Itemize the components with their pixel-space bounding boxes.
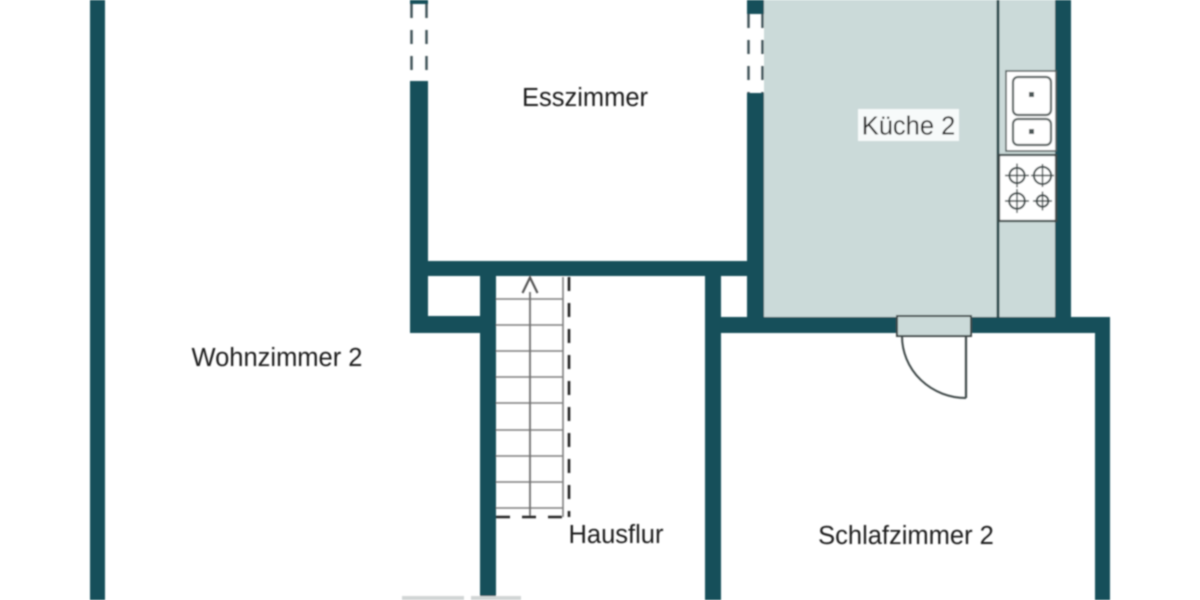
svg-text:Schlafzimmer 2: Schlafzimmer 2: [818, 522, 994, 550]
svg-text:Küche 2: Küche 2: [862, 113, 956, 141]
svg-text:Hausflur: Hausflur: [569, 521, 664, 549]
svg-text:Wohnzimmer 2: Wohnzimmer 2: [192, 344, 363, 372]
svg-text:Esszimmer: Esszimmer: [522, 84, 649, 112]
